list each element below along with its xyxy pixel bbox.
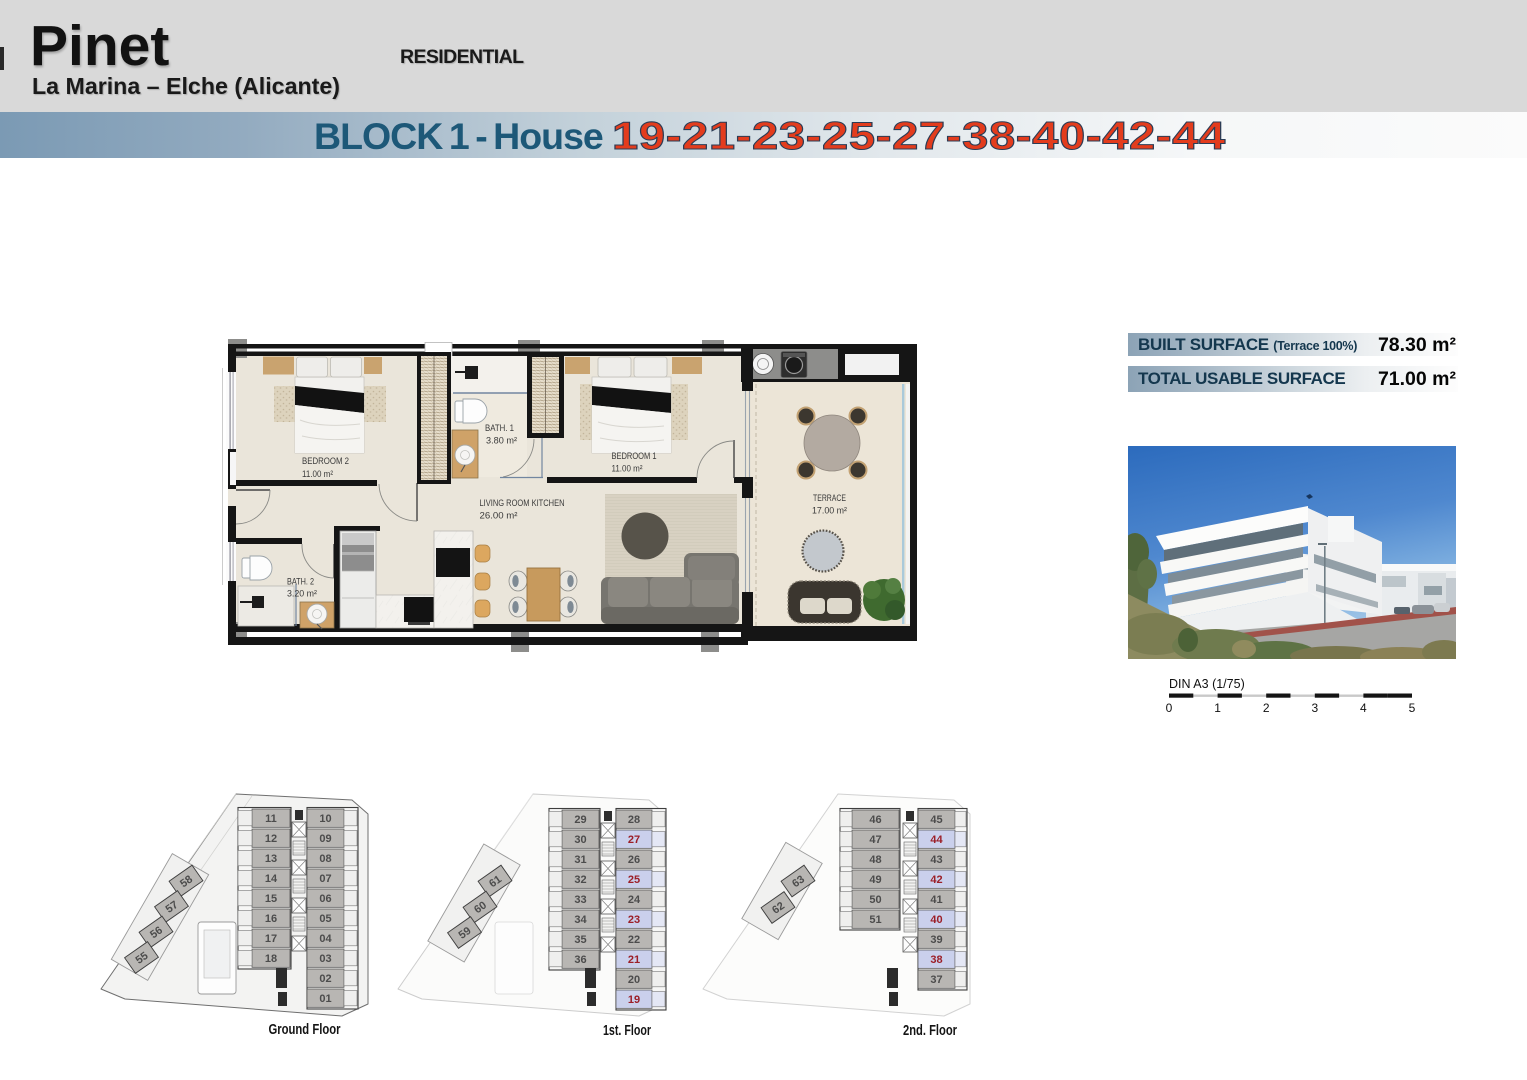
svg-text:12: 12 xyxy=(265,833,277,845)
svg-text:35: 35 xyxy=(574,934,586,946)
svg-text:4: 4 xyxy=(1360,701,1367,715)
svg-text:DIN A3 (1/75): DIN A3 (1/75) xyxy=(1169,677,1245,691)
svg-text:31: 31 xyxy=(574,854,586,866)
svg-text:50: 50 xyxy=(869,894,881,906)
svg-text:3: 3 xyxy=(1311,701,1318,715)
svg-text:LIVING ROOM KITCHEN: LIVING ROOM KITCHEN xyxy=(480,498,565,509)
svg-text:26.00 m²: 26.00 m² xyxy=(480,511,518,522)
svg-text:37: 37 xyxy=(930,974,942,986)
svg-text:20: 20 xyxy=(628,974,640,986)
svg-text:1st. Floor: 1st. Floor xyxy=(603,1023,651,1039)
svg-text:46: 46 xyxy=(869,814,881,826)
svg-text:44: 44 xyxy=(930,834,943,846)
svg-text:23: 23 xyxy=(628,914,640,926)
svg-text:19: 19 xyxy=(628,994,640,1006)
svg-text:36: 36 xyxy=(574,954,586,966)
svg-text:30: 30 xyxy=(574,834,586,846)
svg-text:BATH. 1: BATH. 1 xyxy=(485,423,514,434)
svg-text:27: 27 xyxy=(628,834,640,846)
svg-text:41: 41 xyxy=(930,894,942,906)
svg-text:29: 29 xyxy=(574,814,586,826)
svg-text:15: 15 xyxy=(265,893,277,905)
svg-text:13: 13 xyxy=(265,853,277,865)
svg-text:22: 22 xyxy=(628,934,640,946)
svg-text:24: 24 xyxy=(628,894,641,906)
svg-text:11.00 m²: 11.00 m² xyxy=(302,469,333,480)
svg-text:3.80 m²: 3.80 m² xyxy=(486,436,517,447)
svg-text:Ground Floor: Ground Floor xyxy=(269,1022,341,1038)
svg-text:04: 04 xyxy=(319,933,332,945)
svg-text:11: 11 xyxy=(265,813,277,825)
svg-text:25: 25 xyxy=(628,874,640,886)
svg-text:TERRACE: TERRACE xyxy=(813,493,846,504)
svg-text:2nd. Floor: 2nd. Floor xyxy=(903,1023,957,1039)
svg-text:08: 08 xyxy=(319,853,331,865)
svg-text:14: 14 xyxy=(265,873,278,885)
svg-text:26: 26 xyxy=(628,854,640,866)
svg-text:38: 38 xyxy=(930,954,942,966)
svg-text:45: 45 xyxy=(930,814,942,826)
svg-text:42: 42 xyxy=(930,874,942,886)
svg-text:09: 09 xyxy=(319,833,331,845)
svg-text:07: 07 xyxy=(319,873,331,885)
svg-text:02: 02 xyxy=(319,973,331,985)
svg-text:48: 48 xyxy=(869,854,881,866)
svg-text:21: 21 xyxy=(628,954,640,966)
svg-text:39: 39 xyxy=(930,934,942,946)
svg-text:1: 1 xyxy=(1214,701,1221,715)
svg-text:3.20 m²: 3.20 m² xyxy=(287,589,317,600)
svg-text:BEDROOM 1: BEDROOM 1 xyxy=(612,451,657,462)
svg-text:51: 51 xyxy=(869,914,881,926)
svg-text:BATH. 2: BATH. 2 xyxy=(287,577,314,588)
svg-text:43: 43 xyxy=(930,854,942,866)
svg-text:11.00 m²: 11.00 m² xyxy=(612,464,643,475)
svg-text:40: 40 xyxy=(930,914,942,926)
svg-text:34: 34 xyxy=(574,914,587,926)
svg-text:47: 47 xyxy=(869,834,881,846)
svg-text:5: 5 xyxy=(1409,701,1416,715)
svg-text:49: 49 xyxy=(869,874,881,886)
svg-text:28: 28 xyxy=(628,814,640,826)
svg-text:03: 03 xyxy=(319,953,331,965)
svg-text:17: 17 xyxy=(265,933,277,945)
svg-text:18: 18 xyxy=(265,953,277,965)
svg-text:33: 33 xyxy=(574,894,586,906)
svg-text:06: 06 xyxy=(319,893,331,905)
svg-text:05: 05 xyxy=(319,913,331,925)
svg-text:16: 16 xyxy=(265,913,277,925)
svg-text:10: 10 xyxy=(319,813,331,825)
svg-text:BEDROOM 2: BEDROOM 2 xyxy=(302,456,349,467)
svg-text:17.00 m²: 17.00 m² xyxy=(812,506,847,517)
svg-text:2: 2 xyxy=(1263,701,1270,715)
svg-text:01: 01 xyxy=(319,993,331,1005)
svg-text:32: 32 xyxy=(574,874,586,886)
svg-text:0: 0 xyxy=(1166,701,1173,715)
